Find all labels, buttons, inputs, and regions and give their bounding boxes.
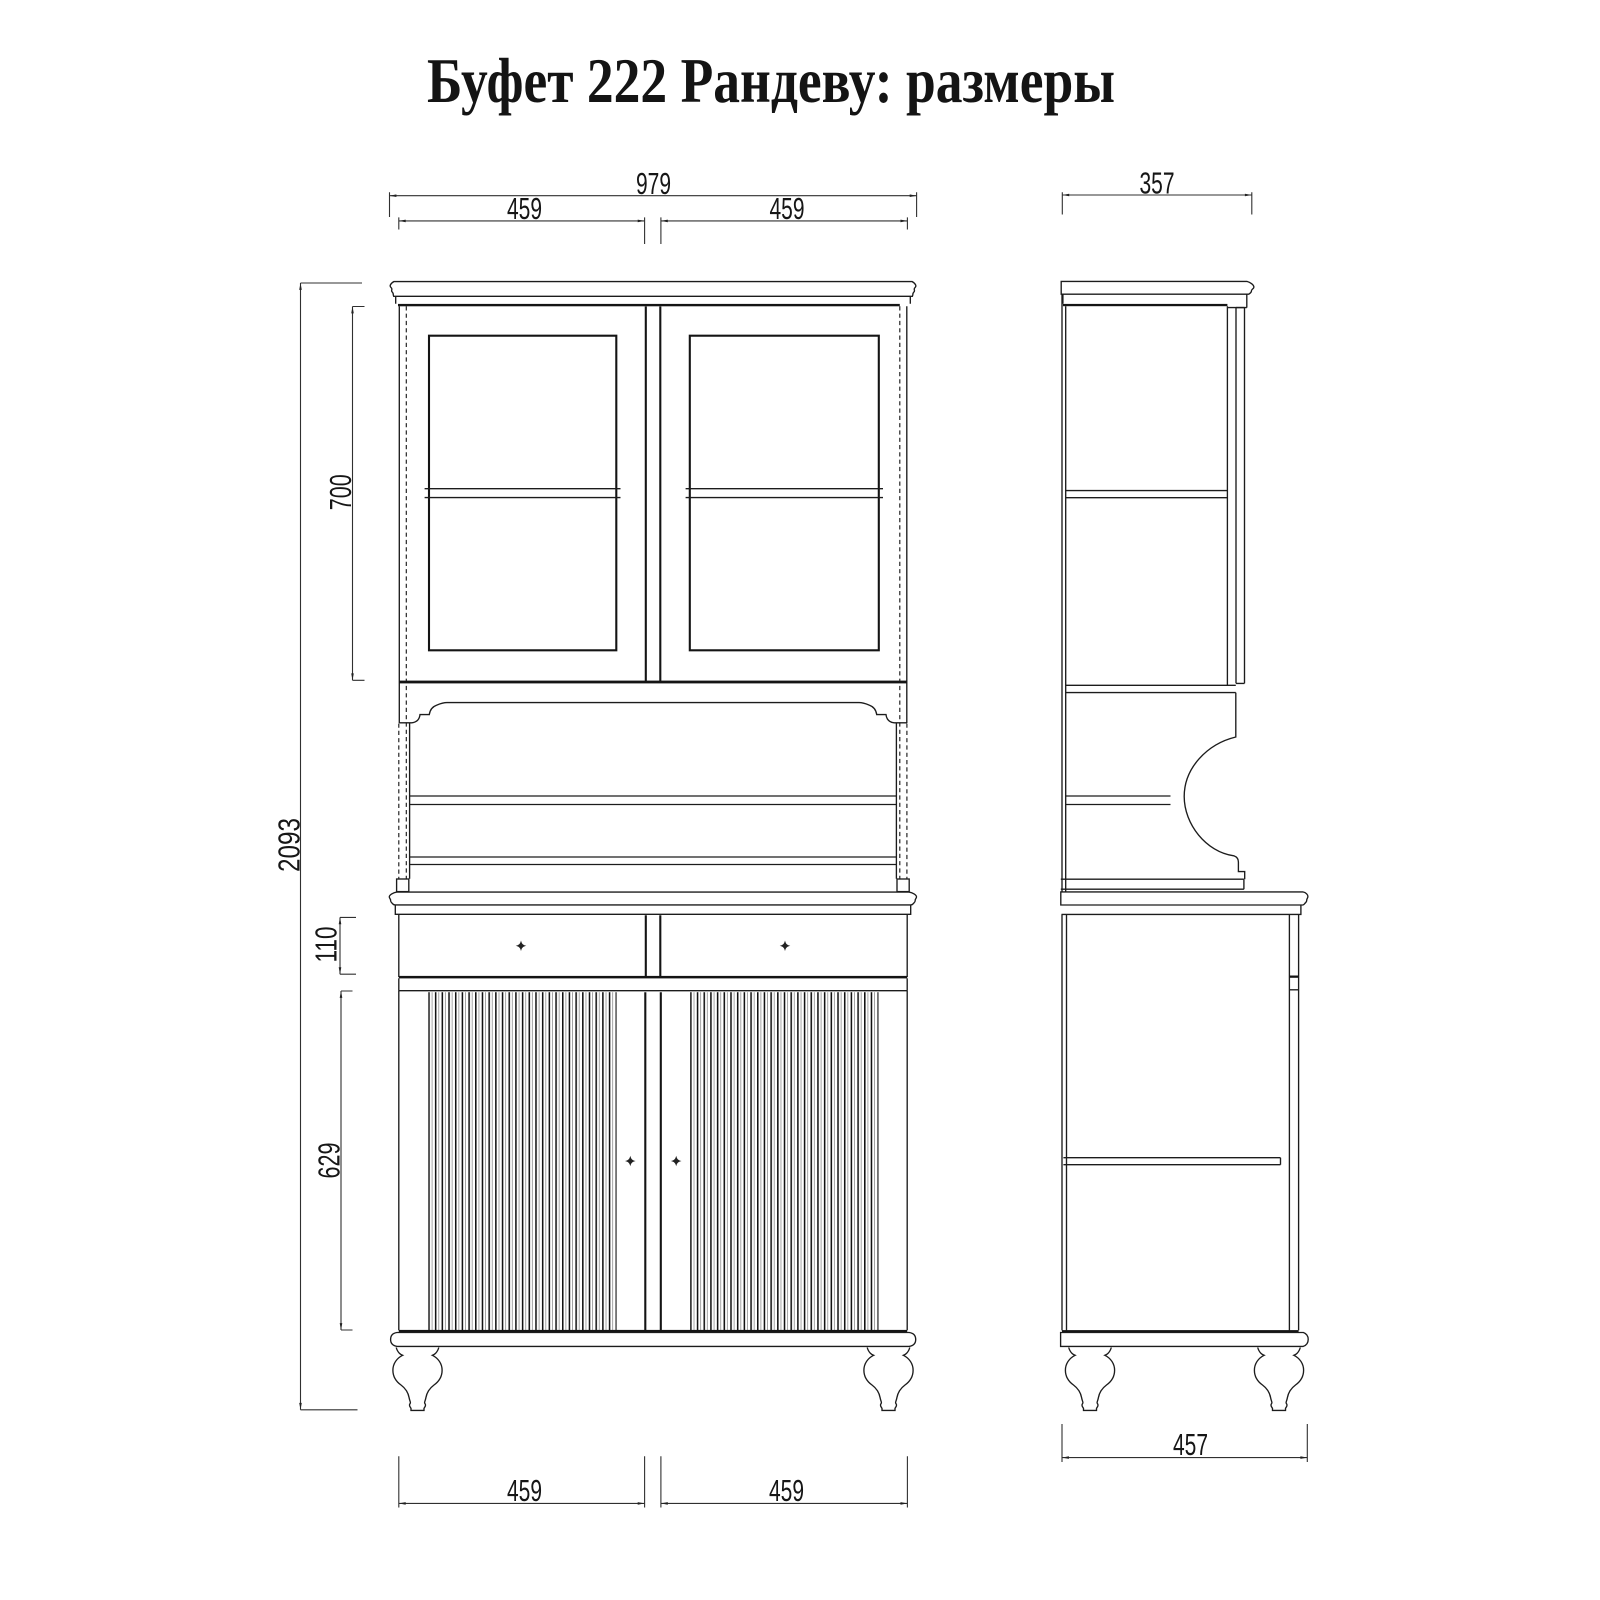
svg-text:700: 700 — [324, 474, 358, 510]
svg-text:457: 457 — [1173, 1428, 1208, 1462]
svg-text:459: 459 — [507, 1474, 542, 1508]
svg-text:459: 459 — [769, 1474, 804, 1508]
svg-text:629: 629 — [313, 1143, 347, 1179]
svg-text:110: 110 — [310, 927, 344, 963]
svg-text:459: 459 — [770, 192, 805, 226]
svg-text:357: 357 — [1140, 166, 1175, 200]
svg-text:459: 459 — [507, 192, 542, 226]
svg-text:2093: 2093 — [273, 818, 307, 872]
svg-text:979: 979 — [636, 167, 671, 201]
svg-text:Буфет 222 Рандеву: размеры: Буфет 222 Рандеву: размеры — [427, 45, 1115, 116]
